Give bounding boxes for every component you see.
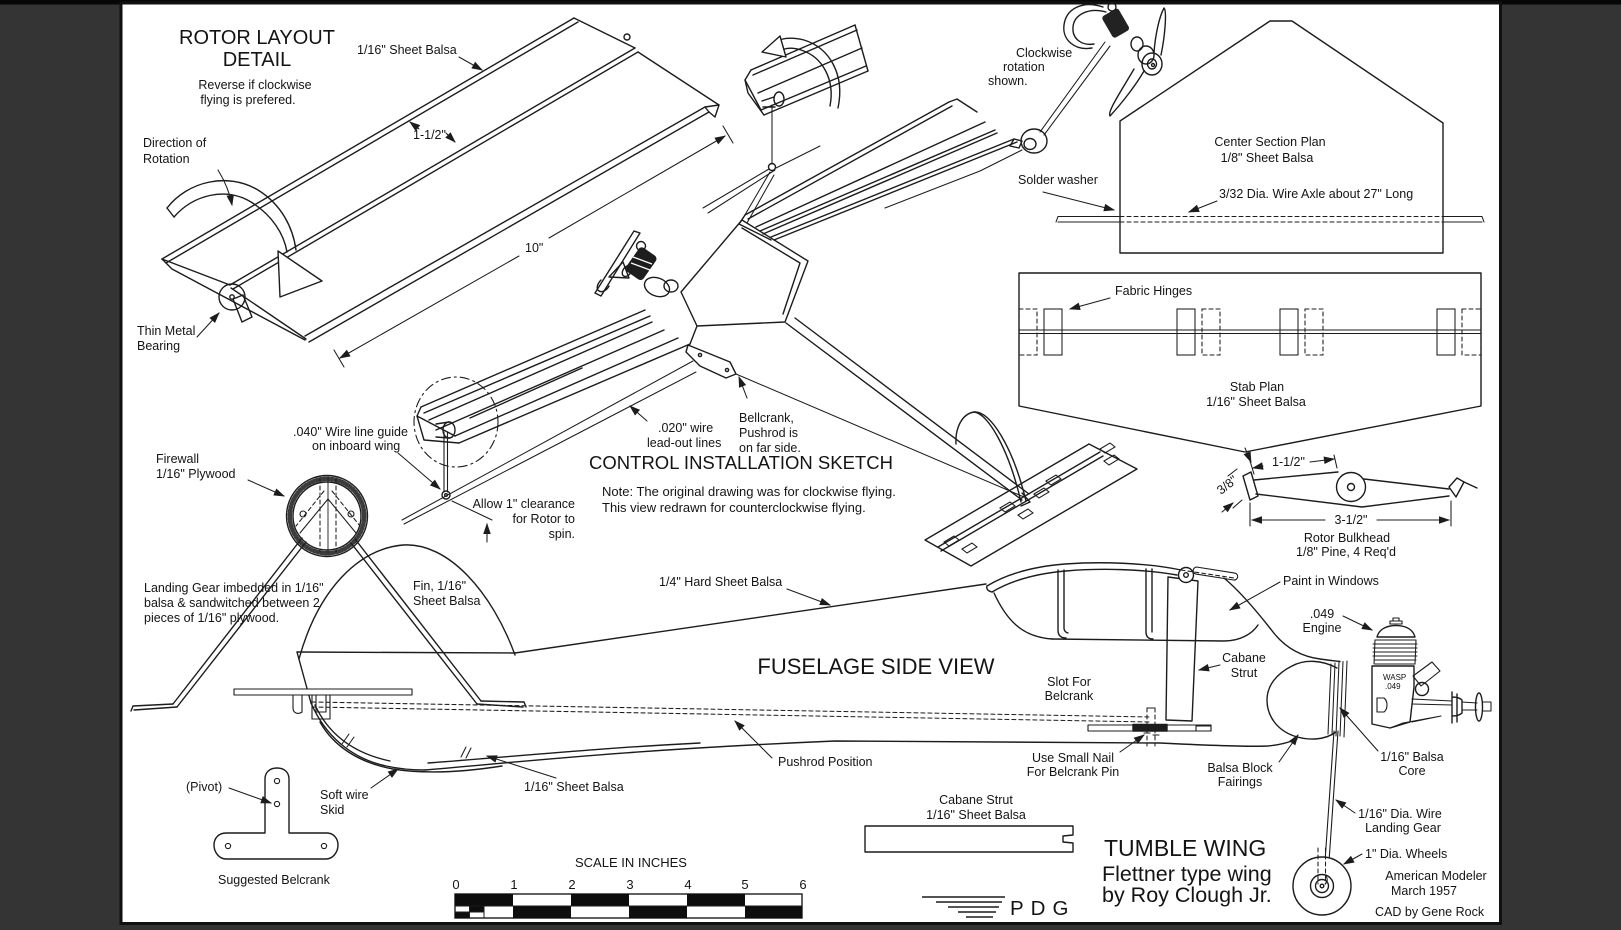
svg-text:3-1/2": 3-1/2" xyxy=(1335,513,1368,527)
svg-text:March 1957: March 1957 xyxy=(1391,884,1457,898)
svg-text:Solder washer: Solder washer xyxy=(1018,173,1098,187)
svg-text:Pushrod Position: Pushrod Position xyxy=(778,755,873,769)
svg-text:on inboard wing: on inboard wing xyxy=(312,439,400,453)
svg-text:Belcrank: Belcrank xyxy=(1045,689,1094,703)
svg-text:Suggested Belcrank: Suggested Belcrank xyxy=(218,873,331,887)
svg-text:Pushrod is: Pushrod is xyxy=(739,426,798,440)
svg-text:Sheet Balsa: Sheet Balsa xyxy=(413,594,480,608)
svg-text:1/8" Sheet Balsa: 1/8" Sheet Balsa xyxy=(1221,151,1314,165)
svg-text:PDG: PDG xyxy=(1010,897,1075,920)
svg-text:ROTOR LAYOUT: ROTOR LAYOUT xyxy=(179,27,335,49)
svg-text:1-1/2": 1-1/2" xyxy=(413,128,446,142)
svg-text:Rotor Bulkhead: Rotor Bulkhead xyxy=(1304,531,1390,545)
svg-text:Thin Metal: Thin Metal xyxy=(137,324,195,338)
svg-text:for Rotor to: for Rotor to xyxy=(512,512,575,526)
svg-text:Paint in Windows: Paint in Windows xyxy=(1283,574,1379,588)
svg-text:flying is prefered.: flying is prefered. xyxy=(200,93,295,107)
svg-text:spin.: spin. xyxy=(549,527,575,541)
svg-text:Reverse if clockwise: Reverse if clockwise xyxy=(198,78,311,92)
svg-text:1-1/2": 1-1/2" xyxy=(1272,455,1305,469)
svg-text:2: 2 xyxy=(568,877,575,892)
svg-text:This view redrawn for counterc: This view redrawn for counterclockwise f… xyxy=(602,500,866,515)
svg-text:1/16" Sheet Balsa: 1/16" Sheet Balsa xyxy=(926,808,1026,822)
svg-text:Allow 1" clearance: Allow 1" clearance xyxy=(473,497,575,511)
svg-text:.040" Wire line guide: .040" Wire line guide xyxy=(293,425,408,439)
svg-text:1/4" Hard Sheet Balsa: 1/4" Hard Sheet Balsa xyxy=(659,575,782,589)
svg-text:4: 4 xyxy=(684,877,691,892)
svg-text:Use Small Nail: Use Small Nail xyxy=(1032,751,1114,765)
svg-text:Landing Gear: Landing Gear xyxy=(1365,821,1441,835)
svg-text:Cabane Strut: Cabane Strut xyxy=(939,793,1013,807)
svg-text:1/16" Sheet Balsa: 1/16" Sheet Balsa xyxy=(524,780,624,794)
svg-text:Landing Gear imbedded in 1/16": Landing Gear imbedded in 1/16" xyxy=(144,581,324,595)
svg-text:1/16" Balsa: 1/16" Balsa xyxy=(1380,750,1444,764)
svg-text:SCALE IN INCHES: SCALE IN INCHES xyxy=(575,855,687,870)
svg-text:5: 5 xyxy=(741,877,748,892)
svg-text:Clockwise: Clockwise xyxy=(1016,46,1072,60)
svg-text:.020" wire: .020" wire xyxy=(658,421,713,435)
svg-text:CAD by Gene Rock: CAD by Gene Rock xyxy=(1375,905,1485,919)
svg-text:Strut: Strut xyxy=(1231,666,1258,680)
svg-text:10": 10" xyxy=(525,241,543,255)
svg-text:by Roy Clough Jr.: by Roy Clough Jr. xyxy=(1102,883,1272,907)
svg-text:TUMBLE WING: TUMBLE WING xyxy=(1104,835,1266,861)
svg-text:Engine: Engine xyxy=(1303,621,1342,635)
svg-text:Fabric Hinges: Fabric Hinges xyxy=(1115,284,1192,298)
svg-text:For Belcrank Pin: For Belcrank Pin xyxy=(1027,765,1119,779)
svg-text:3/32 Dia. Wire Axle about 27": 3/32 Dia. Wire Axle about 27" Long xyxy=(1219,187,1413,201)
svg-text:1: 1 xyxy=(510,877,517,892)
svg-text:shown.: shown. xyxy=(988,74,1028,88)
svg-text:pieces of 1/16" plywood.: pieces of 1/16" plywood. xyxy=(144,611,279,625)
svg-text:American Modeler: American Modeler xyxy=(1385,869,1486,883)
svg-text:Direction of: Direction of xyxy=(143,136,207,150)
svg-text:1/16" Dia. Wire: 1/16" Dia. Wire xyxy=(1358,807,1442,821)
svg-text:1/16" Sheet Balsa: 1/16" Sheet Balsa xyxy=(357,43,457,57)
svg-text:Bearing: Bearing xyxy=(137,339,180,353)
svg-text:Slot For: Slot For xyxy=(1047,675,1091,689)
svg-text:WASP: WASP xyxy=(1383,673,1406,682)
svg-text:3: 3 xyxy=(626,877,633,892)
svg-text:.049: .049 xyxy=(1310,607,1334,621)
svg-text:Soft wire: Soft wire xyxy=(320,788,369,802)
svg-text:1/16" Plywood: 1/16" Plywood xyxy=(156,467,236,481)
svg-text:.049: .049 xyxy=(1385,682,1401,691)
svg-text:1" Dia. Wheels: 1" Dia. Wheels xyxy=(1365,847,1447,861)
svg-text:0: 0 xyxy=(452,877,459,892)
svg-text:Balsa Block: Balsa Block xyxy=(1207,761,1273,775)
svg-text:1/16" Sheet Balsa: 1/16" Sheet Balsa xyxy=(1206,395,1306,409)
svg-text:Fin, 1/16": Fin, 1/16" xyxy=(413,579,466,593)
svg-text:(Pivot): (Pivot) xyxy=(186,780,222,794)
svg-text:Note: The original drawing was: Note: The original drawing was for clock… xyxy=(602,484,896,499)
svg-text:Cabane: Cabane xyxy=(1222,651,1266,665)
svg-text:6: 6 xyxy=(799,877,806,892)
svg-text:lead-out lines: lead-out lines xyxy=(647,436,721,450)
svg-text:rotation: rotation xyxy=(1003,60,1045,74)
svg-text:DETAIL: DETAIL xyxy=(223,49,292,71)
svg-text:Center Section Plan: Center Section Plan xyxy=(1214,135,1325,149)
svg-text:CONTROL INSTALLATION SKETCH: CONTROL INSTALLATION SKETCH xyxy=(589,452,893,473)
svg-text:1/8" Pine, 4 Req'd: 1/8" Pine, 4 Req'd xyxy=(1296,545,1396,559)
svg-text:Stab Plan: Stab Plan xyxy=(1230,380,1284,394)
svg-text:Bellcrank,: Bellcrank, xyxy=(739,411,794,425)
svg-text:FUSELAGE SIDE VIEW: FUSELAGE SIDE VIEW xyxy=(757,654,994,679)
svg-text:Skid: Skid xyxy=(320,803,344,817)
svg-text:balsa & sandwitched between 2: balsa & sandwitched between 2 xyxy=(144,596,320,610)
svg-text:Firewall: Firewall xyxy=(156,452,199,466)
svg-text:Rotation: Rotation xyxy=(143,152,190,166)
svg-text:Fairings: Fairings xyxy=(1218,775,1262,789)
svg-text:Core: Core xyxy=(1398,764,1425,778)
